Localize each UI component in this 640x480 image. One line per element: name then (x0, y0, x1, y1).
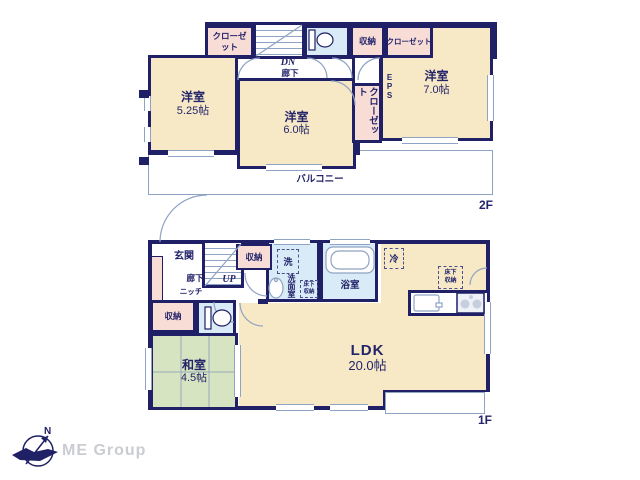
storage-2f-top: 収納 (350, 25, 385, 58)
compass-icon: N (12, 426, 58, 466)
room-2f-a-name: 洋室 (181, 90, 205, 104)
window-2f-c-right (487, 75, 494, 121)
toilet-1f (196, 300, 236, 336)
compass-north-label: N (44, 426, 51, 437)
ldk-name: LDK (320, 342, 415, 359)
hallway-1f-label: 廊下 (180, 274, 210, 284)
niche-label: ニッチ (177, 288, 205, 297)
window-1f-bath-top (330, 239, 370, 245)
room-2f-a-size: 5.25帖 (177, 105, 209, 118)
room-2f-c-size: 7.0帖 (423, 84, 449, 97)
balcony-label: バルコニー (250, 175, 390, 186)
tatami-size: 4.5帖 (181, 372, 207, 385)
storage-1f-west: 収納 (150, 300, 196, 333)
underfloor-wash-label: 床下収納 (303, 282, 315, 296)
closet-2f-tl-label: クローゼット (210, 31, 250, 51)
window-2f-a-left-1 (144, 96, 151, 111)
entrance-label: 玄関 (165, 251, 203, 263)
room-2f-b-name: 洋室 (284, 110, 308, 124)
shoe-cabinet (151, 256, 163, 302)
room-2f-b-size: 6.0帖 (283, 124, 309, 137)
porch-1f (385, 392, 485, 414)
tatami-room: 和室 4.5帖 (150, 333, 238, 410)
room-2f-youshitsu-6-0: 洋室 6.0帖 (237, 78, 356, 169)
wall-stub-1f-toilet (258, 299, 268, 304)
closet-2f-top-right: クローゼット (385, 25, 433, 58)
ldk-size: 20.0帖 (320, 359, 415, 374)
room-2f-c-name: 洋室 (424, 69, 448, 83)
storage-1f-west-label: 収納 (164, 311, 181, 321)
window-2f-b-bottom (266, 164, 322, 171)
washer-space: 洗 (277, 249, 299, 274)
underfloor-ldk-label: 床下収納 (444, 270, 458, 286)
stairs-2f-dn-label: DN (276, 57, 300, 69)
closet-2f-top-left: クローゼット (205, 25, 254, 58)
window-2f-a-left-2 (144, 127, 151, 142)
kitchen-counter (408, 290, 487, 316)
wall-stub-2f-1 (139, 90, 149, 98)
fridge-label: 冷 (389, 252, 398, 265)
f2-mid-column: クローゼット (352, 55, 382, 143)
bathroom-1f (320, 240, 378, 302)
window-1f-tatami-left (145, 348, 152, 390)
bathroom-label: 浴室 (330, 281, 370, 292)
company-logo-text: ME Group (62, 442, 182, 460)
floor-1f-label: 1F (462, 414, 492, 428)
wall-stub-2f-2 (139, 157, 149, 165)
floorplan-canvas: バルコニー 洋室 5.25帖 洋室 6.0帖 洋室 7.0帖 クローゼット EP… (0, 0, 640, 480)
underfloor-storage-washroom: 床下収納 (300, 280, 318, 298)
stairs-2f (253, 22, 305, 59)
storage-1f-hall-label: 収納 (245, 252, 262, 262)
eps-label: EPS (381, 68, 394, 104)
door-arc-entrance (160, 195, 207, 242)
washer-label: 洗 (283, 255, 292, 268)
toilet-2f (304, 25, 350, 58)
ldk-label: LDK 20.0帖 (320, 342, 415, 374)
tatami-name: 和室 (182, 358, 206, 372)
window-1f-ldk-right (484, 302, 491, 354)
storage-1f-hall: 収納 (236, 244, 272, 270)
window-1f-ldk-bottom-1 (276, 404, 314, 411)
floor-2f-label: 2F (460, 199, 493, 213)
window-2f-a-bottom (168, 150, 214, 157)
underfloor-storage-ldk: 床下収納 (438, 266, 463, 289)
closet-2f-tr-label: クローゼット (387, 37, 432, 46)
stairs-1f-up-label: UP (218, 274, 240, 286)
storage-2f-label: 収納 (359, 36, 376, 46)
washroom-label: 洗面室 (284, 270, 296, 302)
window-1f-ldk-bottom-2 (330, 404, 368, 411)
window-2f-c-bottom (402, 137, 458, 144)
fridge-space: 冷 (384, 248, 404, 269)
window-1f-washroom-top (274, 239, 310, 245)
room-2f-youshitsu-5-25: 洋室 5.25帖 (148, 55, 238, 153)
closet-2f-mid: クローゼット (355, 83, 379, 140)
closet-2f-mid-label: クローゼット (356, 87, 378, 139)
sliding-door-tatami (234, 345, 241, 397)
hallway-2f-label: 廊下 (272, 69, 308, 79)
